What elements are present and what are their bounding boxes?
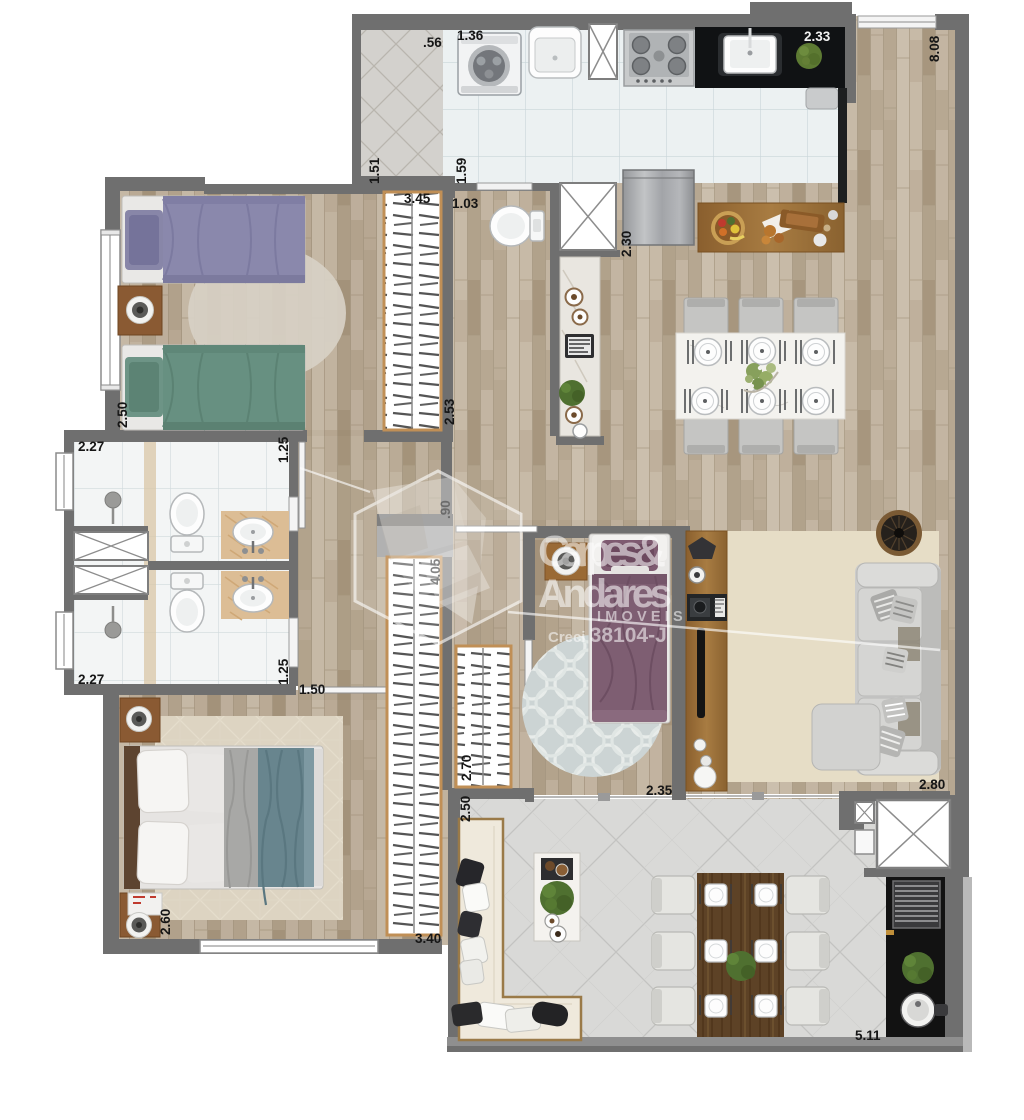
svg-text:1.59: 1.59 (454, 158, 469, 184)
svg-text:IMOVEIS: IMOVEIS (597, 609, 687, 625)
svg-text:2.60: 2.60 (158, 909, 173, 935)
svg-text:3.45: 3.45 (404, 191, 431, 206)
svg-text:2.50: 2.50 (458, 796, 473, 822)
svg-text:.56: .56 (423, 35, 442, 50)
svg-text:1.36: 1.36 (457, 28, 484, 43)
svg-text:8.08: 8.08 (927, 35, 942, 62)
svg-text:2.53: 2.53 (442, 398, 457, 425)
svg-text:2.33: 2.33 (804, 29, 831, 44)
svg-text:2.27: 2.27 (78, 672, 104, 687)
svg-text:2.70: 2.70 (459, 755, 474, 781)
svg-text:Carpes&: Carpes& (538, 527, 666, 576)
svg-text:2.30: 2.30 (619, 231, 634, 257)
svg-text:2.27: 2.27 (78, 439, 104, 454)
svg-text:2.50: 2.50 (115, 402, 130, 428)
svg-text:1.50: 1.50 (299, 682, 325, 697)
svg-text:5.11: 5.11 (855, 1028, 881, 1043)
svg-text:2.35: 2.35 (646, 783, 673, 798)
svg-text:3.40: 3.40 (415, 931, 441, 946)
svg-text:1.25: 1.25 (276, 658, 291, 685)
svg-text:1.25: 1.25 (276, 436, 291, 463)
svg-text:2.80: 2.80 (919, 777, 945, 792)
svg-text:1.03: 1.03 (452, 196, 479, 211)
svg-text:1.51: 1.51 (367, 157, 382, 184)
